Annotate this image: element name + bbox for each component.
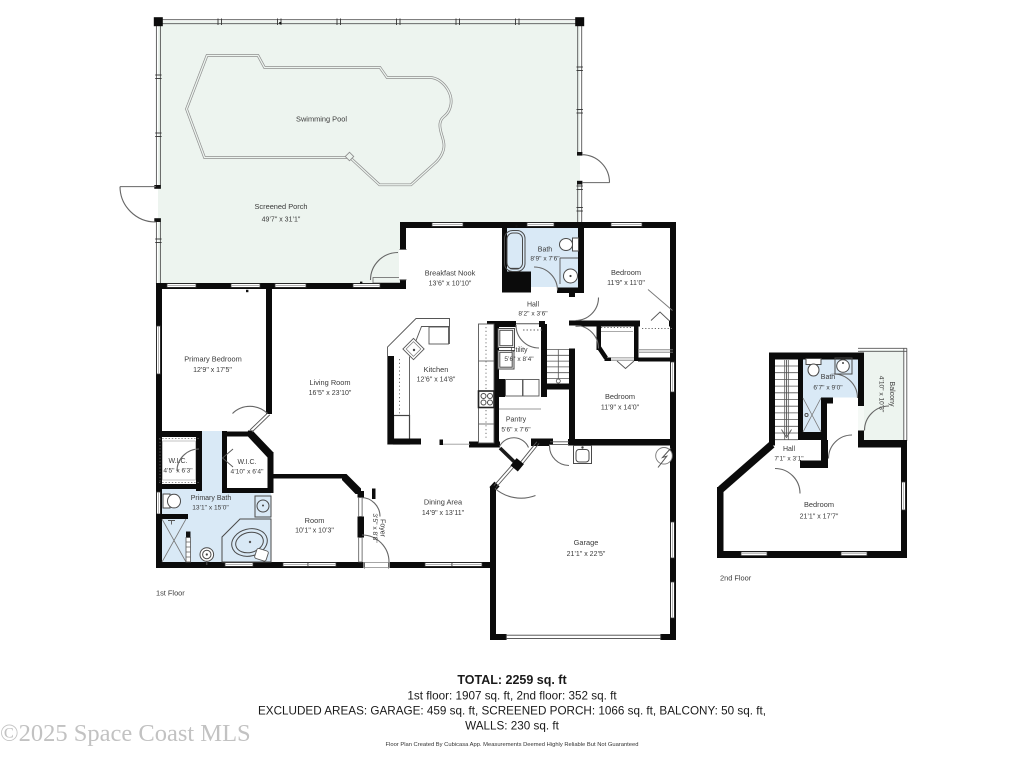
svg-text:Hall: Hall: [783, 446, 796, 453]
svg-text:Kitchen: Kitchen: [424, 365, 449, 374]
svg-text:Bedroom: Bedroom: [611, 268, 641, 277]
svg-text:Living Room: Living Room: [309, 378, 350, 387]
svg-text:Room: Room: [305, 516, 325, 525]
svg-text:4’10" x 10’3": 4’10" x 10’3": [878, 376, 885, 413]
svg-text:1st Floor: 1st Floor: [156, 589, 185, 598]
svg-text:Floor Plan Created By Cubicasa: Floor Plan Created By Cubicasa App. Meas…: [386, 742, 639, 748]
svg-text:10’1" x 10’3": 10’1" x 10’3": [295, 528, 334, 535]
svg-text:4’10" x 6’4": 4’10" x 6’4": [231, 469, 265, 476]
svg-text:Utility: Utility: [510, 347, 528, 354]
svg-text:Bath: Bath: [538, 247, 553, 254]
svg-text:Screened Porch: Screened Porch: [255, 202, 308, 211]
svg-text:W.I.C.: W.I.C.: [168, 458, 187, 465]
svg-text:4’5" x 6’3": 4’5" x 6’3": [163, 468, 193, 475]
svg-text:Bedroom: Bedroom: [605, 392, 635, 401]
svg-text:21’1" x 17’7": 21’1" x 17’7": [800, 514, 839, 521]
svg-text:12’6" x 14’8": 12’6" x 14’8": [417, 377, 456, 384]
svg-text:11’9" x 11’0": 11’9" x 11’0": [607, 280, 645, 287]
svg-text:14’9" x 13’11": 14’9" x 13’11": [422, 510, 465, 517]
svg-text:Garage: Garage: [574, 538, 599, 547]
svg-text:Swimming Pool: Swimming Pool: [296, 115, 347, 124]
svg-text:5’6" x 7’6": 5’6" x 7’6": [501, 427, 531, 434]
svg-text:Breakfast Nook: Breakfast Nook: [425, 269, 476, 278]
svg-text:Hall: Hall: [527, 302, 540, 309]
svg-text:12’9" x 17’5": 12’9" x 17’5": [193, 367, 232, 374]
svg-text:21’1" x 22’5": 21’1" x 22’5": [567, 551, 606, 558]
svg-text:Primary Bedroom: Primary Bedroom: [184, 355, 242, 364]
svg-text:WALLS: 230 sq. ft: WALLS: 230 sq. ft: [465, 720, 560, 733]
svg-text:©2025 Space Coast MLS: ©2025 Space Coast MLS: [0, 720, 251, 747]
svg-text:3’5" x 8’8": 3’5" x 8’8": [371, 513, 378, 543]
svg-text:2nd Floor: 2nd Floor: [720, 574, 752, 583]
svg-text:W.I.C.: W.I.C.: [237, 459, 256, 466]
svg-text:EXCLUDED AREAS: GARAGE: 459 sq: EXCLUDED AREAS: GARAGE: 459 sq. ft, SCRE…: [258, 705, 766, 718]
svg-text:Dining Area: Dining Area: [424, 498, 463, 507]
svg-text:1st floor: 1907 sq. ft, 2nd fl: 1st floor: 1907 sq. ft, 2nd floor: 352 s…: [407, 690, 617, 703]
svg-text:Primary Bath: Primary Bath: [191, 495, 232, 502]
svg-text:Foyer: Foyer: [379, 519, 386, 538]
svg-text:5’6" x 8’4": 5’6" x 8’4": [504, 356, 534, 363]
svg-text:Pantry: Pantry: [506, 417, 527, 424]
svg-text:Balcony: Balcony: [888, 382, 895, 407]
svg-text:49’7" x 31’1": 49’7" x 31’1": [262, 217, 301, 224]
svg-text:TOTAL: 2259 sq. ft: TOTAL: 2259 sq. ft: [457, 673, 567, 687]
svg-text:Bath: Bath: [821, 374, 836, 381]
svg-text:8’2" x 3’6": 8’2" x 3’6": [518, 311, 548, 318]
svg-text:7’1" x 3’1": 7’1" x 3’1": [774, 456, 804, 463]
svg-text:6’7" x 9’0": 6’7" x 9’0": [813, 385, 843, 392]
svg-text:Bedroom: Bedroom: [804, 500, 834, 509]
svg-text:8’9" x 7’6": 8’9" x 7’6": [530, 256, 560, 263]
svg-text:13’6" x 10’10": 13’6" x 10’10": [429, 281, 472, 288]
svg-text:13’1" x 15’0": 13’1" x 15’0": [192, 505, 229, 512]
svg-text:16’5" x 23’10": 16’5" x 23’10": [309, 390, 352, 397]
svg-text:11’9" x 14’0": 11’9" x 14’0": [601, 405, 640, 412]
